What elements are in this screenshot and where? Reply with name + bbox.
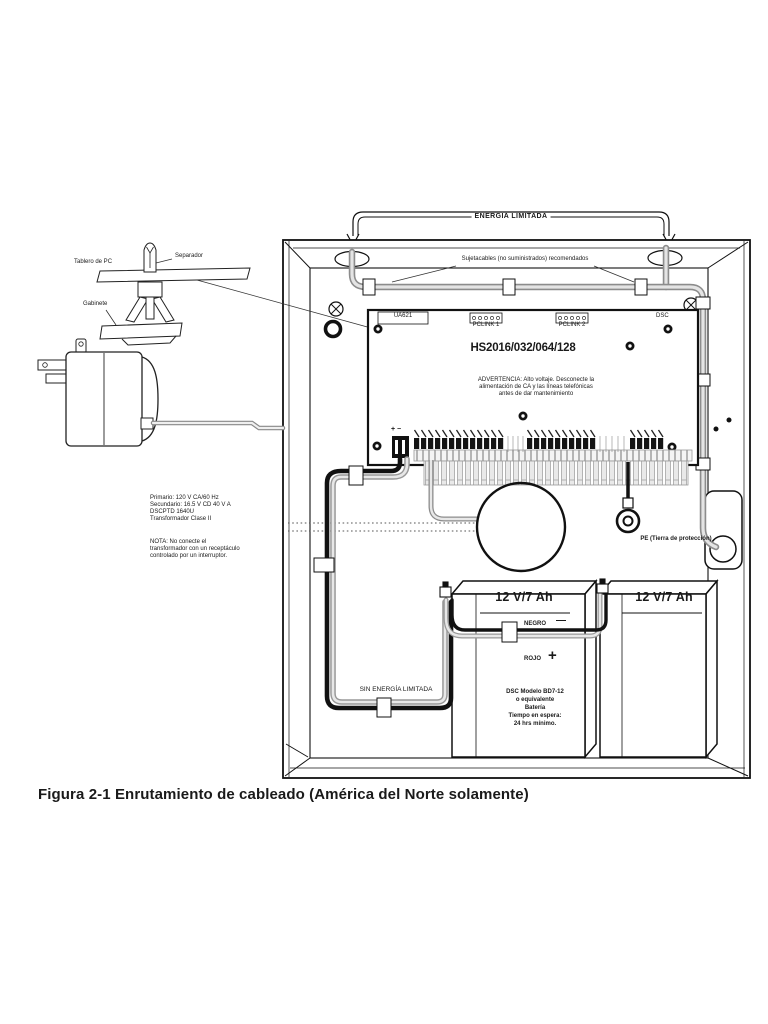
battery-spec-line2: o equivalente [516, 697, 554, 703]
battery-2-drawing [600, 581, 717, 757]
pe-ground-label: PE (Tierra de protección) [640, 536, 711, 542]
transformer-spec-line3: DSCPTD 1640U [150, 509, 194, 515]
transformer-note-line3: controlado por un interruptor. [150, 553, 227, 559]
board-warning-line3: antes de dar mantenimiento [499, 391, 573, 397]
board-warning-line1: ADVERTENCIA: Alto voltaje. Desconecte la [478, 377, 594, 383]
battery-spec-line3: Batería [525, 705, 545, 711]
cable-ties-note: Sujetacables (no suministrados) recomend… [462, 256, 589, 262]
standoff-label: Separador [175, 253, 203, 259]
positive-symbol: + [548, 648, 557, 664]
pc-board-label: Tablero de PC [74, 259, 112, 265]
figure-caption: Figura 2-1 Enrutamiento de cableado (Amé… [38, 787, 529, 803]
transformer-note-line1: NOTA: No conecte el [150, 539, 206, 545]
transformer-cord [153, 423, 283, 428]
board-sticker: UA621 [394, 313, 412, 319]
transformer-drawing [38, 339, 158, 446]
battery1-rating: 12 V/7 Ah [495, 591, 553, 604]
manual-page: ENERGÍA LIMITADA Sujetacables (no sumini… [0, 0, 768, 1024]
terminal-strip [392, 430, 692, 485]
transformer-note-line2: transformador con un receptáculo [150, 546, 240, 552]
battery-terminal-marks: + − [391, 426, 401, 433]
pclink1-label: PCLINK 1 [473, 322, 500, 328]
rojo-label: ROJO [524, 656, 541, 662]
wiring-diagram-lineart [0, 0, 768, 1024]
battery-spec-line5: 24 hrs mínimo. [514, 721, 556, 727]
battery-spec-line1: DSC Modelo BD7-12 [506, 689, 564, 695]
unlimited-power-label: SIN ENERGÍA LIMITADA [360, 687, 433, 694]
battery-1-drawing [452, 581, 596, 757]
battery2-rating: 12 V/7 Ah [635, 591, 693, 604]
board-model: HS2016/032/064/128 [470, 342, 575, 354]
board-warning-line2: alimentación de CA y las líneas telefóni… [479, 384, 593, 390]
standoff-detail-drawing [97, 243, 250, 345]
dsc-logo: DSC [656, 313, 669, 319]
transformer-spec-line4: Transformador Clase II [150, 516, 211, 522]
cabinet-label: Gabinete [83, 301, 107, 307]
negro-label: NEGRO [524, 621, 546, 627]
transformer-spec-line2: Secundario: 16.5 V CD 40 V A [150, 502, 231, 508]
battery-spec-line4: Tiempo en espera: [509, 713, 562, 719]
transformer-spec-line1: Primario: 120 V CA/60 Hz [150, 495, 219, 501]
pclink2-label: PCLINK 2 [559, 322, 586, 328]
negative-symbol: — [556, 616, 566, 627]
energia-limitada-label: ENERGÍA LIMITADA [472, 213, 551, 220]
